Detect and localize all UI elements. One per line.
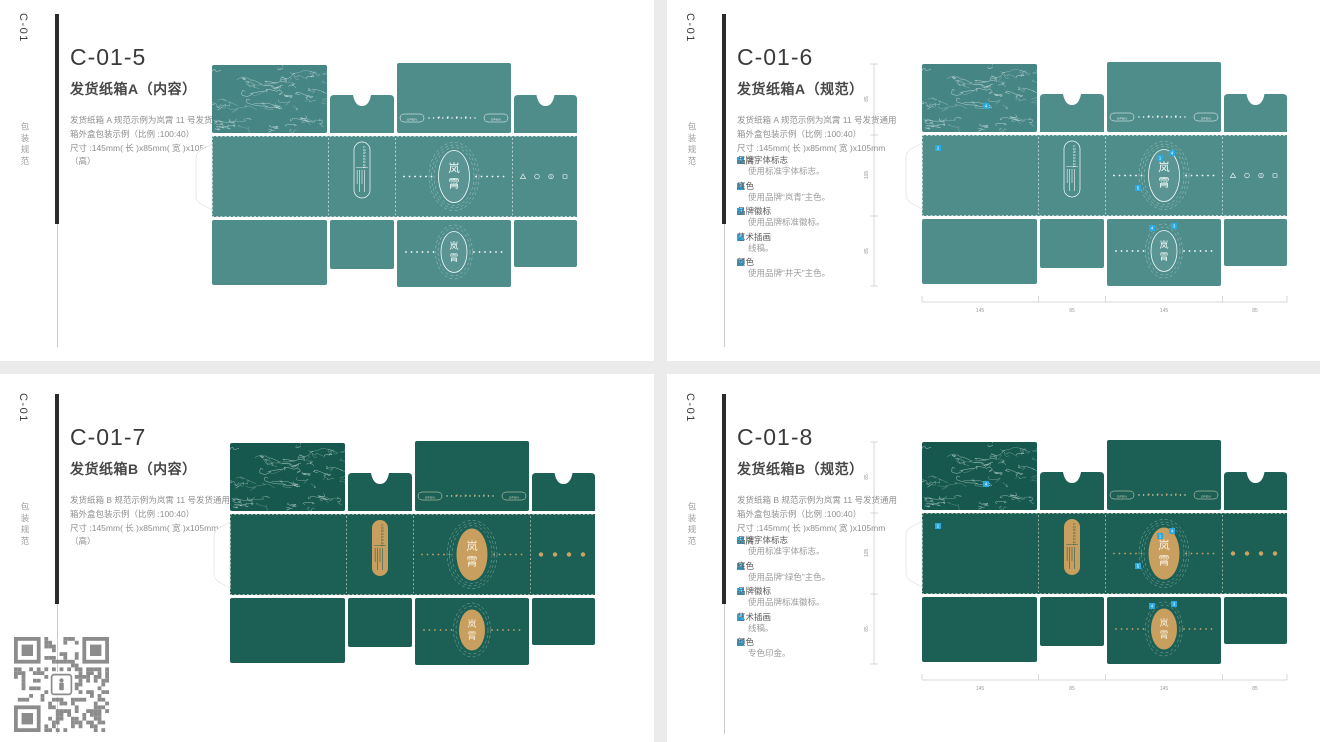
panel-card-c-01-5: C-01 包装规范 C-01-5 发货纸箱A（内容） 发货纸箱 A 规范示例为岚… [0, 0, 654, 361]
svg-text:霄: 霄 [467, 631, 476, 642]
annotation-label: 颜色 [737, 637, 754, 648]
annotation-label: 品牌徽标 [737, 586, 771, 597]
sidebar-bar [55, 14, 59, 224]
side-category-label: 包装规范 [19, 122, 31, 168]
svg-text:霄: 霄 [1158, 554, 1170, 568]
svg-text:霄: 霄 [1158, 176, 1170, 190]
svg-text:霄: 霄 [449, 253, 458, 264]
svg-text:85: 85 [864, 96, 870, 102]
svg-text:OPEN: OPEN [491, 117, 501, 121]
dieline-diagram-spec-a: OPENOPENLONGSOUL岚霄岚霄42145438510585145851… [856, 60, 1292, 322]
spec-sheet-page: { "page": { "bg": "#ebebeb", "card_bg": … [0, 0, 1320, 742]
svg-text:LONGSOUL: LONGSOUL [380, 525, 384, 548]
svg-text:145: 145 [976, 686, 985, 692]
svg-text:105: 105 [864, 549, 870, 558]
annotation-label: 颜色 [737, 257, 754, 268]
svg-text:霄: 霄 [1159, 252, 1168, 263]
svg-text:OPEN: OPEN [407, 117, 417, 121]
page-title: C-01-8 [737, 424, 813, 451]
svg-text:85: 85 [1252, 686, 1258, 692]
annotation-label: 品牌徽标 [737, 206, 771, 217]
svg-text:LONGSOUL: LONGSOUL [1072, 146, 1076, 169]
annotation-label: 底色 [737, 561, 754, 572]
svg-text:岚: 岚 [1159, 240, 1168, 251]
svg-text:85: 85 [1252, 308, 1258, 314]
dieline-diagram-content-a: OPENOPENLONGSOUL岚霄岚霄 [146, 61, 582, 323]
panel-card-c-01-6: C-01 包装规范 C-01-6 发货纸箱A（规范） 发货纸箱 A 规范示例为岚… [667, 0, 1320, 361]
svg-text:岚: 岚 [467, 619, 476, 630]
svg-text:OPEN: OPEN [1201, 116, 1211, 120]
side-category-label: 包装规范 [686, 122, 698, 168]
svg-text:145: 145 [976, 308, 985, 314]
svg-text:岚: 岚 [466, 539, 478, 553]
svg-text:145: 145 [1160, 308, 1169, 314]
page-subtitle: 发货纸箱A（规范） [737, 79, 864, 99]
page-title: C-01-6 [737, 44, 813, 71]
sidebar-bar [722, 14, 726, 224]
svg-text:岚: 岚 [448, 161, 460, 175]
side-code-label: C-01 [17, 13, 29, 43]
dieline-diagram-content-b: OPENOPENLONGSOUL岚霄岚霄 [164, 439, 600, 701]
annotation-label: 品牌字体标志 [737, 535, 788, 546]
svg-text:145: 145 [1160, 686, 1169, 692]
svg-text:霄: 霄 [448, 177, 460, 191]
svg-text:85: 85 [864, 626, 870, 632]
panel-card-c-01-8: C-01 包装规范 C-01-8 发货纸箱B（规范） 发货纸箱 B 规范示例为岚… [667, 374, 1320, 742]
dieline-diagram-spec-b: OPENOPENLONGSOUL岚霄岚霄42145438510585145851… [856, 438, 1292, 700]
page-subtitle: 发货纸箱B（规范） [737, 459, 864, 479]
side-code-label: C-01 [684, 393, 696, 423]
side-category-label: 包装规范 [19, 502, 31, 548]
svg-text:霄: 霄 [1159, 630, 1168, 641]
svg-text:OPEN: OPEN [1117, 116, 1127, 120]
side-code-label: C-01 [684, 13, 696, 43]
svg-text:85: 85 [1069, 686, 1075, 692]
page-title: C-01-5 [70, 44, 146, 71]
svg-text:OPEN: OPEN [425, 495, 435, 499]
svg-text:OPEN: OPEN [509, 495, 519, 499]
annotation-label: 艺术插画 [737, 232, 771, 243]
svg-text:105: 105 [864, 171, 870, 180]
svg-text:LONGSOUL: LONGSOUL [362, 147, 366, 170]
annotation-label: 底色 [737, 181, 754, 192]
side-category-label: 包装规范 [686, 502, 698, 548]
side-code-label: C-01 [17, 393, 29, 423]
svg-text:OPEN: OPEN [1201, 494, 1211, 498]
svg-text:OPEN: OPEN [1117, 494, 1127, 498]
svg-text:85: 85 [1069, 308, 1075, 314]
svg-text:85: 85 [864, 474, 870, 480]
svg-text:LONGSOUL: LONGSOUL [1072, 524, 1076, 547]
qr-code [14, 637, 109, 732]
annotation-label: 艺术插画 [737, 612, 771, 623]
svg-text:岚: 岚 [1158, 538, 1170, 552]
svg-text:85: 85 [864, 248, 870, 254]
svg-text:岚: 岚 [1159, 618, 1168, 629]
svg-text:岚: 岚 [1158, 160, 1170, 174]
svg-text:岚: 岚 [449, 241, 458, 252]
sidebar-bar [55, 394, 59, 604]
sidebar-bar [722, 394, 726, 604]
annotation-label: 品牌字体标志 [737, 155, 788, 166]
svg-text:霄: 霄 [466, 555, 478, 569]
page-title: C-01-7 [70, 424, 146, 451]
